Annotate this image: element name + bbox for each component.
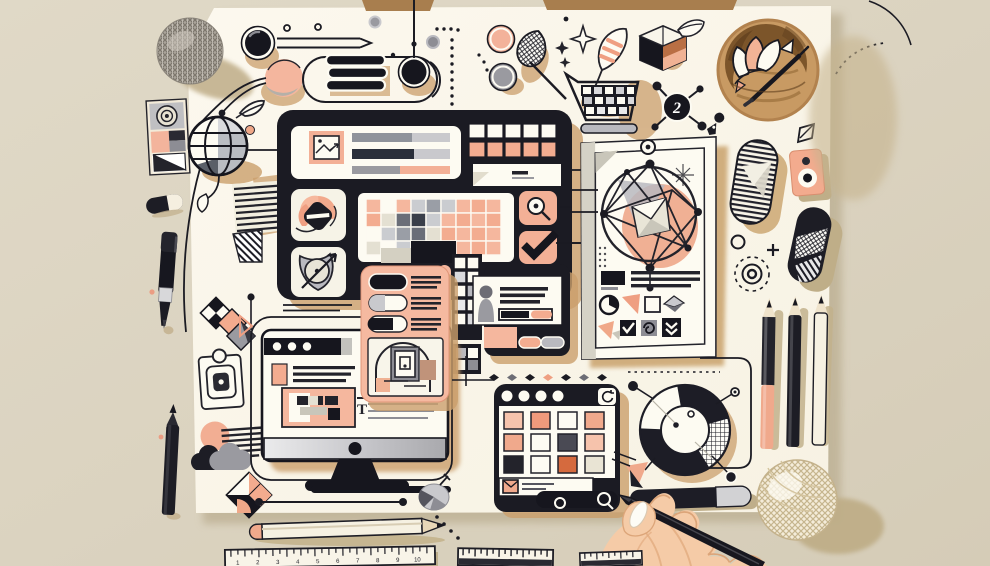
svg-text:2: 2 bbox=[672, 100, 681, 117]
svg-text:10: 10 bbox=[414, 557, 421, 563]
svg-text:T: T bbox=[357, 402, 367, 418]
